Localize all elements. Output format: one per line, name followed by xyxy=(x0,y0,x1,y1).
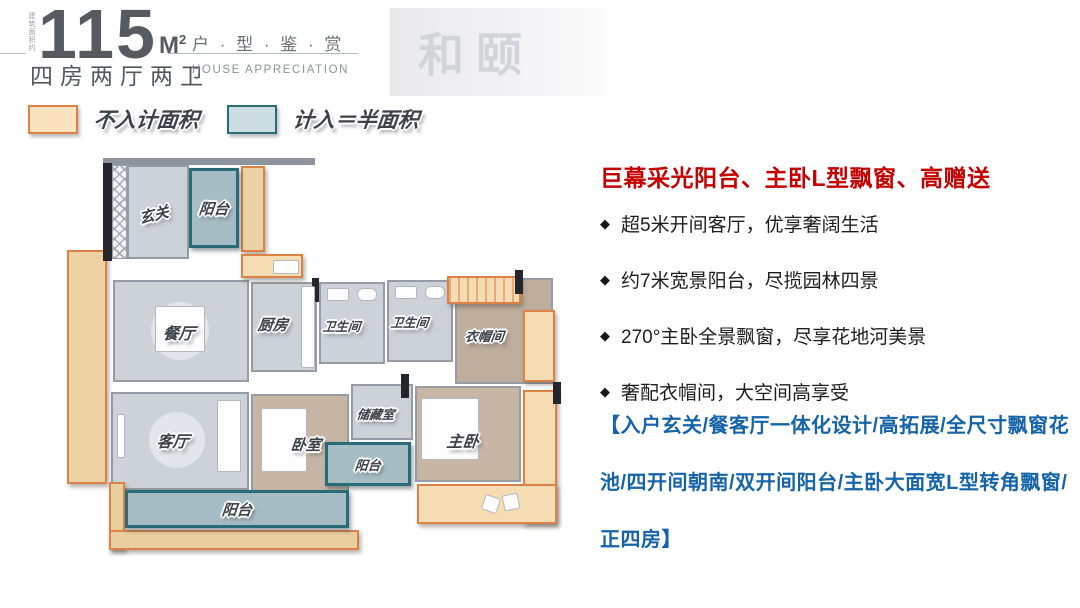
balcony-small-label: 阳台 xyxy=(354,455,382,474)
half-counted-swatch-icon xyxy=(227,105,277,134)
room-storage-label: 储藏室 xyxy=(356,404,396,423)
bullet-text: 超5米开间客厅，优享奢阔生活 xyxy=(621,210,879,237)
area-prefix-vertical: 建筑面积约 xyxy=(26,12,36,52)
room-dining-label: 餐厅 xyxy=(162,320,197,344)
diamond-bullet-icon: ◆ xyxy=(600,328,610,344)
bullet-item: ◆ 270°主卧全景飘窗，尽享花地河美景 xyxy=(600,322,1070,349)
series-title: 户 · 型 · 鉴 · 赏 xyxy=(192,30,349,55)
master-l-bay-horizontal xyxy=(417,484,557,524)
bay-pillow xyxy=(481,494,501,514)
area-unit-letter: M xyxy=(159,32,179,59)
room-living-label: 客厅 xyxy=(156,428,191,452)
bullet-item: ◆ 约7米宽景阳台，尽揽园林四景 xyxy=(600,266,1070,293)
bath1-sink xyxy=(327,288,349,301)
header-rule-left xyxy=(0,53,26,54)
living-sofa xyxy=(217,400,241,472)
diamond-bullet-icon: ◆ xyxy=(600,272,610,288)
floor-plan: 玄关 餐厅 厨房 卫生间 卫生间 衣帽间 客厅 卧室 储藏室 主卧 xyxy=(65,146,579,570)
not-counted-swatch-icon xyxy=(28,105,78,134)
flower-bed-bottom xyxy=(109,530,359,550)
bay-pillow xyxy=(502,493,521,512)
highlights-summary: 【入户玄关/餐客厅一体化设计/高拓展/全尺寸飘窗花池/四开间朝南/双开间阳台/主… xyxy=(600,398,1078,569)
slide: 建筑面积约 115 M2 四房两厅两卫 户 · 型 · 鉴 · 赏 HOUSE … xyxy=(0,0,1080,608)
bath2-toilet xyxy=(425,286,445,299)
wall-segment xyxy=(103,163,112,261)
room-bedroom-label: 卧室 xyxy=(290,434,322,455)
legend: 不入计面积 计入＝半面积 xyxy=(28,104,447,134)
sink-counter-box xyxy=(241,254,303,278)
bullet-text: 约7米宽景阳台，尽揽园林四景 xyxy=(621,266,879,293)
apartment-type: 四房两厅两卫 xyxy=(30,57,210,91)
balcony-top-label: 阳台 xyxy=(198,198,230,219)
room-bath1-label: 卫生间 xyxy=(322,316,362,335)
balcony-bottom-label: 阳台 xyxy=(221,499,253,520)
wall-segment xyxy=(515,270,523,294)
series-subtitle: HOUSE APPRECIATION xyxy=(192,64,349,76)
flower-bed-top xyxy=(241,166,265,252)
wardrobe-bay xyxy=(447,276,521,304)
series-block: 户 · 型 · 鉴 · 赏 HOUSE APPRECIATION xyxy=(192,30,349,76)
bath2-sink xyxy=(395,286,417,299)
legend-item-half-counted: 计入＝半面积 xyxy=(227,104,419,134)
living-tv xyxy=(117,414,125,458)
shoe-cabinet xyxy=(112,165,127,259)
balcony-small: 阳台 xyxy=(325,442,411,486)
diamond-bullet-icon: ◆ xyxy=(600,216,610,232)
balcony-bottom: 阳台 xyxy=(125,490,349,528)
wall-segment xyxy=(103,158,315,165)
balcony-top: 阳台 xyxy=(189,168,239,248)
bath1-toilet xyxy=(357,288,377,301)
cloakroom-bay-window xyxy=(523,310,555,382)
bullet-text: 270°主卧全景飘窗，尽享花地河美景 xyxy=(621,322,926,349)
watermark-band: 和颐 xyxy=(390,8,605,96)
not-counted-label: 不入计面积 xyxy=(92,104,200,134)
room-kitchen-label: 厨房 xyxy=(257,314,289,335)
watermark-text: 和颐 xyxy=(418,19,534,85)
sink-basin xyxy=(273,260,299,274)
room-cloakroom-label: 衣帽间 xyxy=(464,326,505,345)
area-unit: M2 xyxy=(159,32,186,60)
legend-item-not-counted: 不入计面积 xyxy=(28,104,199,134)
half-counted-label: 计入＝半面积 xyxy=(291,104,420,134)
flower-bed-left xyxy=(67,250,107,484)
wall-segment xyxy=(401,374,409,398)
area-unit-sup: 2 xyxy=(179,32,186,47)
bullet-item: ◆ 超5米开间客厅，优享奢阔生活 xyxy=(600,210,1070,237)
kitchen-counter xyxy=(301,286,315,368)
wall-segment xyxy=(553,382,561,404)
room-bath2-label: 卫生间 xyxy=(390,312,430,331)
highlights-title: 巨幕采光阳台、主卧L型飘窗、高赠送 xyxy=(600,159,1070,193)
room-master-label: 主卧 xyxy=(446,428,481,452)
